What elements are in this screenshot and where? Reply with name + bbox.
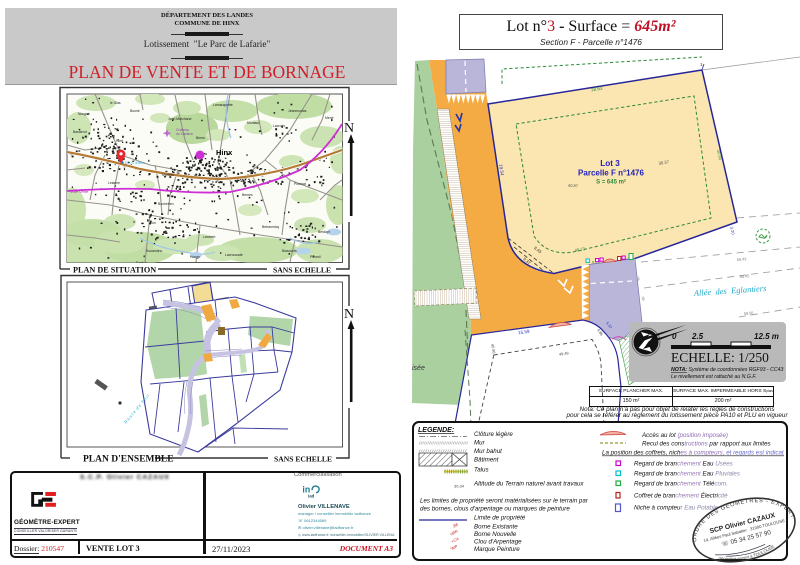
svg-text:Lacrouzade: Lacrouzade: [225, 253, 243, 257]
svg-text:PLAN DE SITUATION: PLAN DE SITUATION: [73, 266, 156, 275]
svg-text:40.87: 40.87: [568, 183, 579, 189]
svg-text:S = 645 m²: S = 645 m²: [596, 179, 626, 186]
svg-text:12.5 m: 12.5 m: [754, 332, 779, 341]
svg-text:iad: iad: [308, 493, 315, 498]
svg-text:Marque Peinture: Marque Peinture: [474, 546, 520, 553]
svg-text:56: 56: [640, 296, 645, 301]
svg-text:+CA: +CA: [450, 536, 460, 544]
svg-text:Souandinu: Souandinu: [146, 249, 162, 253]
svg-text:C.L.S. d'Hinx: C.L.S. d'Hinx: [125, 161, 145, 165]
svg-text:Lambert: Lambert: [203, 235, 215, 239]
svg-text:3.20: 3.20: [729, 226, 736, 236]
svg-text:2.5: 2.5: [691, 332, 704, 341]
svg-text:Talus: Talus: [474, 467, 489, 474]
svg-text:Lelanne: Lelanne: [108, 181, 120, 185]
svg-text:SANS ECHELLE: SANS ECHELLE: [273, 266, 331, 275]
svg-text:Regard de branchement Eau Usée: Regard de branchement Eau Usées: [634, 461, 733, 468]
svg-text:Jeanmoutas: Jeanmoutas: [288, 109, 307, 113]
svg-text:Hinx: Hinx: [216, 148, 233, 157]
svg-text:56.45: 56.45: [740, 274, 750, 279]
svg-text:.BE: .BE: [451, 522, 459, 529]
svg-text:Lacroès: Lacroès: [273, 124, 285, 128]
svg-text:Bouné: Bouné: [130, 109, 140, 113]
svg-text:Bouheben: Bouheben: [158, 202, 174, 206]
svg-text:Hiert: Hiert: [116, 139, 123, 143]
svg-text:Betranmicq: Betranmicq: [262, 225, 279, 229]
svg-text:1: 1: [700, 62, 703, 67]
svg-text:Regard de branchement Télécom.: Regard de branchement Télécom.: [634, 481, 728, 488]
svg-text:Mur bahut: Mur bahut: [474, 448, 502, 455]
svg-text:*MP: *MP: [449, 544, 458, 552]
svg-text:Borne Existante: Borne Existante: [474, 524, 518, 531]
svg-text:59.50: 59.50: [744, 311, 754, 316]
svg-text:Yon: Yon: [150, 221, 156, 225]
svg-text:LEGENDE:: LEGENDE:: [418, 427, 454, 434]
svg-text:Parcelle F n°1476: Parcelle F n°1476: [578, 169, 644, 178]
svg-text:Limite de propriété: Limite de propriété: [474, 515, 526, 522]
svg-text:Mené: Mené: [325, 116, 334, 120]
svg-text:Pournil: Pournil: [310, 255, 321, 259]
svg-text:La position des coffrets, nich: La position des coffrets, niches à compt…: [602, 450, 784, 457]
svg-text:Berns: Berns: [196, 136, 205, 140]
svg-text:du Castéra: du Castéra: [176, 132, 193, 136]
svg-text:le Glas: le Glas: [110, 101, 121, 105]
svg-text:Mur: Mur: [474, 440, 486, 447]
svg-text:N: N: [344, 307, 354, 322]
svg-text:30.34: 30.34: [454, 484, 465, 489]
svg-text:Bâtiment: Bâtiment: [474, 457, 499, 464]
svg-text:Montaut: Montaut: [247, 121, 259, 125]
svg-text:Voie Verte: Voie Verte: [70, 189, 89, 194]
svg-text:Blascouts: Blascouts: [282, 249, 297, 253]
svg-text:PLAN D'ENSEMBLE: PLAN D'ENSEMBLE: [83, 455, 174, 465]
svg-text:Nougué: Nougué: [78, 112, 90, 116]
svg-text:Lamauquette: Lamauquette: [213, 103, 233, 107]
svg-text:Bastarrot: Bastarrot: [73, 130, 87, 134]
svg-text:N: N: [344, 121, 354, 136]
svg-text:Les limites de propriété seron: Les limites de propriété seront matérial…: [420, 498, 589, 505]
svg-text:Jean Marchand: Jean Marchand: [168, 117, 191, 121]
svg-text:Le nivellement est rattaché au: Le nivellement est rattaché au N.G.F.: [671, 374, 756, 380]
svg-text:Lot 3: Lot 3: [600, 159, 620, 168]
svg-text:Clou d'Arpentage: Clou d'Arpentage: [474, 539, 522, 546]
svg-text:Hougp: Hougp: [190, 255, 200, 259]
svg-text:des bornes, clous d'arpentage: des bornes, clous d'arpentage ou marques…: [420, 506, 570, 513]
svg-text:Clôture légère: Clôture légère: [474, 431, 513, 438]
svg-text:0: 0: [672, 332, 677, 341]
svg-text:Borne Nouvelle: Borne Nouvelle: [474, 531, 517, 538]
svg-text:Bernes: Bernes: [242, 193, 253, 197]
svg-text:Allée des Eglantiers: Allée des Eglantiers: [692, 283, 767, 298]
svg-text:Regard de branchement Eau Pluv: Regard de branchement Eau Pluviales: [634, 471, 740, 478]
svg-text:NOTA: Système de coordonnées R: NOTA: Système de coordonnées RGF93 - CC4…: [671, 367, 783, 373]
svg-text:oBN: oBN: [449, 529, 458, 537]
svg-text:Altitude du Terrain naturel av: Altitude du Terrain naturel avant travau…: [473, 481, 584, 488]
svg-text:50.43: 50.43: [737, 257, 747, 262]
svg-text:isée: isée: [412, 365, 425, 372]
svg-text:Pournat: Pournat: [294, 182, 306, 186]
svg-text:Accès au lot (position imposée: Accès au lot (position imposée): [641, 432, 728, 439]
svg-text:Berdayt: Berdayt: [318, 230, 330, 234]
svg-text:Recul des constructions par ra: Recul des constructions par rapport aux …: [642, 441, 771, 448]
svg-text:ECHELLE: 1/250: ECHELLE: 1/250: [671, 350, 769, 365]
svg-text:SANS ECHELLE: SANS ECHELLE: [274, 455, 332, 464]
svg-text:Mariette: Mariette: [162, 173, 174, 177]
